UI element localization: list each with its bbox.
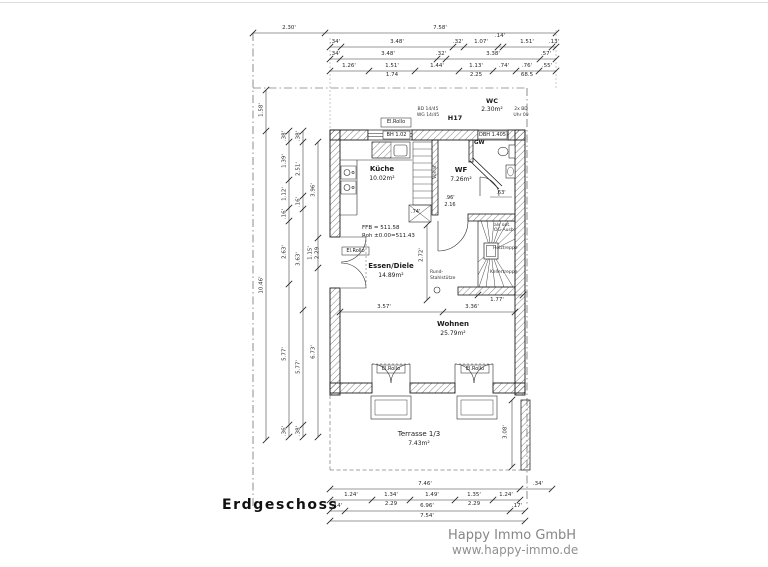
room-area-kueche: 10.02m² [369, 176, 394, 182]
dim-label: 5.77' [296, 360, 302, 374]
dim-label: 2.72' [419, 248, 425, 262]
hob-symbol-1 [341, 166, 356, 179]
dim-label: .14' [495, 34, 505, 40]
annotation-bd: BD 14/45 [418, 108, 439, 113]
bh-label: BH 1.02 [387, 133, 407, 138]
dim-label: 1.51' [385, 64, 399, 70]
dbh-label: DBH 1.405 [479, 133, 506, 138]
terrace-step-1 [371, 396, 411, 419]
dim-label: 2.51' [296, 162, 302, 176]
hob-symbol-2 [341, 181, 356, 194]
dim-label: .38' [296, 131, 302, 141]
watermark-company: Happy Immo GmbH [448, 529, 576, 542]
dim-label: 7.54' [420, 514, 434, 520]
dim-label: .36' [282, 426, 288, 436]
dim-label: .16' [282, 209, 288, 219]
dim-sublabel: 1.74 [386, 73, 398, 79]
annotation-uhr: Uhr 09 [513, 114, 528, 119]
dim-label: 1.26' [342, 64, 356, 70]
dim-label: 3.48' [381, 52, 395, 58]
dim-label: 1.07' [474, 40, 488, 46]
toilet-bowl [498, 147, 508, 156]
dim-label: 1.24' [499, 493, 513, 499]
dimension-lines [250, 30, 559, 524]
stair-label-2: Kellertreppe [490, 271, 517, 276]
dim-label: 3.57' [377, 305, 391, 311]
dim-sublabel: 2.29 [315, 247, 321, 259]
dim-label: 3.38' [486, 52, 500, 58]
toilet-tank [509, 145, 515, 158]
wc-door-dim-label: .63' [496, 191, 505, 196]
room-area-wohnen: 25.79m² [440, 331, 465, 337]
room-label-terrasse: Terrasse 1/3 [398, 431, 440, 438]
dim-sublabel: 68.5 [521, 73, 533, 79]
el-rollo-label-top: El.Rollo [387, 120, 405, 125]
room-area-essen: 14.89m² [378, 273, 403, 279]
dim-sublabel: 2.29 [468, 502, 480, 508]
door-width-label: .96' [445, 196, 454, 201]
room-label-essen: Essen/Diele [368, 263, 414, 270]
room-label-gw: GW [474, 141, 485, 147]
dim-label: .17' [512, 504, 522, 510]
stair-note-2: OG-Ausb. [494, 229, 515, 234]
left-door-leaf-bottom [341, 263, 366, 288]
room-label-wc: WC [486, 98, 498, 105]
hall-door [438, 221, 468, 251]
room-label-wf: WF [455, 167, 468, 174]
dim-label: 2.63' [282, 245, 288, 259]
annotation-h17: H17 [448, 115, 463, 122]
dim-label: 1.51' [520, 40, 534, 46]
dim-label: 1.34' [384, 493, 398, 499]
dim-label: 3.63' [296, 252, 302, 266]
dim-label: 1.35' [467, 493, 481, 499]
dim-label: 1.24' [344, 493, 358, 499]
dim-label: 7.46' [418, 482, 432, 488]
el-rollo-label-door1: El.Rollo [382, 367, 400, 372]
dim-label: 3.48' [390, 40, 404, 46]
garden-wall [521, 400, 530, 470]
dim-label: 1.39' [282, 154, 288, 168]
dim-label: 1.49' [425, 493, 439, 499]
dim-sublabel: 2.29 [385, 502, 397, 508]
dim-label: 3.96' [311, 183, 317, 197]
dim-label: .32' [436, 52, 446, 58]
dim-label: .38' [282, 131, 288, 141]
el-rollo-label-left: El.Rollo [346, 249, 364, 254]
doors [341, 177, 512, 383]
dim-label: .57' [541, 52, 551, 58]
dim-label: 5.77' [282, 347, 288, 361]
room-area-terrasse: 7.43m² [408, 441, 430, 447]
room-label-wohnen: Wohnen [437, 321, 469, 328]
exterior-walls [330, 130, 525, 395]
floorplan-drawing [0, 0, 768, 567]
dim-label: .16' [296, 197, 302, 207]
dim-label: 1.58' [259, 103, 265, 117]
niche-dim-label: .74' [411, 210, 420, 215]
dim-label: .34' [533, 482, 543, 488]
dim-label: 6.96' [420, 504, 434, 510]
dim-label: .38' [296, 426, 302, 436]
column-label-1: Rund- [430, 271, 443, 276]
dim-sublabel: 2.25 [470, 73, 482, 79]
sink-basin [394, 145, 407, 156]
dim-label: 1.44' [430, 64, 444, 70]
dim-label: 6.73' [311, 345, 317, 359]
el-rollo-label-door2: El.Rollo [466, 367, 484, 372]
round-column [434, 287, 440, 293]
ffb-label: FFB = 511.58 [362, 226, 399, 232]
pantry-shelves [413, 142, 432, 205]
room-area-wc: 2.30m² [481, 107, 503, 113]
dim-label: 10.46' [259, 276, 265, 293]
dim-label: 7.58' [433, 26, 447, 32]
roh-label: Roh ±0.00=511.43 [362, 234, 415, 240]
annotation-wg: WG 14/45 [417, 114, 439, 119]
dim-label: .34' [330, 40, 340, 46]
dim-label: .34' [330, 52, 340, 58]
room-area-wf: 7.26m² [450, 177, 472, 183]
dim-label: .55' [542, 64, 552, 70]
dim-label: 1.13' [469, 64, 483, 70]
terrace-step-2 [457, 396, 497, 419]
dim-label: .74' [499, 64, 509, 70]
floorplan-page: 2.30' 7.58' .34' 3.48' .32' 1.07' .14' 1… [0, 0, 768, 567]
door-height-label: 2.16 [444, 203, 455, 208]
dim-label: .76' [522, 64, 532, 70]
pantry-label: Vorrat [434, 165, 439, 179]
watermark-website: www.happy-immo.de [452, 544, 578, 556]
dim-label: 2.30' [282, 26, 296, 32]
dim-label: 1.15' [308, 246, 314, 260]
windows [342, 118, 508, 373]
dim-label: 3.36' [465, 305, 479, 311]
dim-label: 1.12' [282, 187, 288, 201]
page-title: Erdgeschoss [222, 498, 339, 512]
dim-label: 3.08' [503, 425, 509, 439]
dim-label: .13' [549, 40, 559, 46]
column-label-2: Stahlstütze [430, 277, 455, 282]
room-label-kueche: Küche [370, 166, 394, 173]
annotation-2xbd: 2x BD [514, 108, 528, 113]
dim-label: .32' [453, 40, 463, 46]
stair-label-1: Holztreppe [493, 247, 518, 252]
dim-label: 1.77' [490, 298, 504, 304]
